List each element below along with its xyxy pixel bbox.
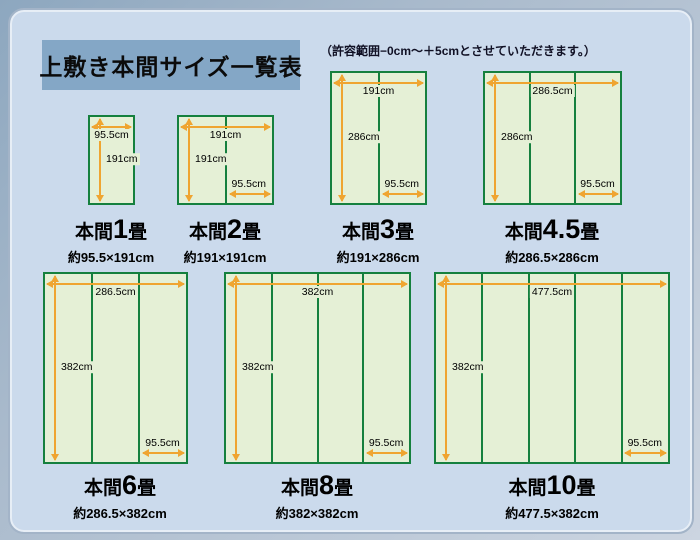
width-arrow (92, 126, 131, 128)
width-dimension-label: 191cm (208, 130, 244, 142)
bottom-width-arrow (143, 452, 184, 454)
tatami-size-chart: { "page": { "title": "上敷き本間サイズ一覧表", "not… (0, 0, 700, 540)
width-arrow (438, 283, 666, 285)
mat-divider (528, 274, 530, 462)
diagram-caption-honma-10jo: 本間10畳 約477.5×382cm (505, 472, 599, 522)
mat-divider (362, 274, 364, 462)
mat-name: 本間3畳 (337, 216, 420, 243)
tatami-diagram-honma-10jo: 477.5cm 382cm 95.5cm (434, 272, 670, 464)
width-dimension-label: 382cm (300, 287, 336, 299)
width-dimension-label: 95.5cm (92, 130, 130, 142)
mat-name: 本間10畳 (505, 472, 599, 499)
bottom-width-dimension-label: 95.5cm (226, 179, 273, 191)
mat-size: 約477.5×382cm (505, 503, 599, 522)
bottom-width-arrow (383, 193, 423, 195)
tatami-diagram-honma-6jo: 286.5cm 382cm 95.5cm (43, 272, 188, 464)
width-dimension-label: 191cm (361, 86, 397, 98)
height-dimension-label: 286cm (499, 132, 535, 144)
diagram-caption-honma-2jo: 本間2畳 約191×191cm (184, 216, 267, 266)
diagram-caption-honma-3jo: 本間3畳 約191×286cm (337, 216, 420, 266)
height-arrow (188, 119, 190, 201)
mat-divider (574, 274, 576, 462)
width-arrow (228, 283, 407, 285)
tatami-diagram-honma-1jo: 95.5cm 191cm (88, 115, 135, 205)
diagram-caption-honma-4_5jo: 本間4.5畳 約286.5×286cm (505, 216, 600, 266)
diagram-caption-honma-8jo: 本間8畳 約382×382cm (276, 472, 359, 522)
mat-size: 約191×286cm (337, 247, 420, 266)
mat-divider (317, 274, 319, 462)
height-dimension-label: 382cm (240, 362, 276, 374)
mat-size: 約191×191cm (184, 247, 267, 266)
width-arrow (181, 126, 270, 128)
width-arrow (334, 82, 423, 84)
mat-name: 本間6畳 (73, 472, 167, 499)
width-dimension-label: 286.5cm (93, 287, 137, 299)
title-box: 上敷き本間サイズ一覧表 (42, 40, 300, 90)
height-arrow (494, 75, 496, 201)
mat-size: 約95.5×191cm (68, 247, 154, 266)
mat-size: 約286.5×382cm (73, 503, 167, 522)
width-arrow (487, 82, 618, 84)
mat-divider (138, 274, 140, 462)
bottom-width-arrow (625, 452, 666, 454)
tatami-diagram-honma-8jo: 382cm 382cm 95.5cm (224, 272, 411, 464)
bottom-width-arrow (230, 193, 270, 195)
bottom-width-arrow (579, 193, 618, 195)
width-dimension-label: 286.5cm (530, 86, 574, 98)
height-dimension-label: 191cm (104, 154, 140, 166)
bottom-width-dimension-label: 95.5cm (575, 179, 620, 191)
height-arrow (341, 75, 343, 201)
height-dimension-label: 286cm (346, 132, 382, 144)
tatami-diagram-honma-3jo: 191cm 286cm 95.5cm (330, 71, 427, 205)
diagram-caption-honma-1jo: 本間1畳 約95.5×191cm (68, 216, 154, 266)
mat-name: 本間8畳 (276, 472, 359, 499)
bottom-width-dimension-label: 95.5cm (139, 438, 186, 450)
height-arrow (445, 276, 447, 460)
bottom-width-arrow (367, 452, 407, 454)
tatami-diagram-honma-4_5jo: 286.5cm 286cm 95.5cm (483, 71, 622, 205)
mat-name: 本間2畳 (184, 216, 267, 243)
mat-divider (621, 274, 623, 462)
mat-name: 本間1畳 (68, 216, 154, 243)
bottom-width-dimension-label: 95.5cm (379, 179, 426, 191)
height-arrow (235, 276, 237, 460)
height-dimension-label: 382cm (59, 362, 95, 374)
height-dimension-label: 191cm (193, 154, 229, 166)
diagram-caption-honma-6jo: 本間6畳 約286.5×382cm (73, 472, 167, 522)
mat-size: 約382×382cm (276, 503, 359, 522)
mat-name: 本間4.5畳 (505, 216, 600, 243)
height-dimension-label: 382cm (450, 362, 486, 374)
width-dimension-label: 477.5cm (530, 287, 574, 299)
bottom-width-dimension-label: 95.5cm (363, 438, 409, 450)
tolerance-note: （許容範囲−0cm〜＋5cmとさせていただきます。） (320, 42, 596, 59)
bottom-width-dimension-label: 95.5cm (622, 438, 668, 450)
width-arrow (47, 283, 184, 285)
tatami-diagram-honma-2jo: 191cm 191cm 95.5cm (177, 115, 274, 205)
mat-size: 約286.5×286cm (505, 247, 600, 266)
height-arrow (54, 276, 56, 460)
page-title: 上敷き本間サイズ一覧表 (39, 48, 302, 82)
